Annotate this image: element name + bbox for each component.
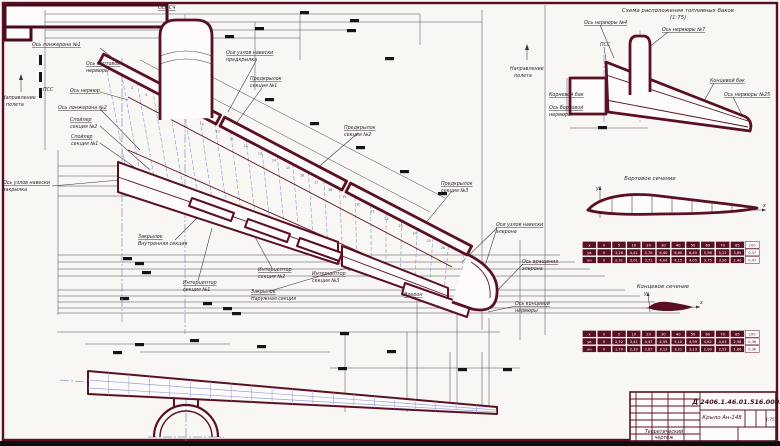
svg-text:10: 10	[632, 332, 637, 336]
slat3-label: Предкрылок	[441, 181, 473, 187]
svg-text:24: 24	[413, 232, 417, 236]
tip-tank-label: Концевой бак	[710, 78, 745, 84]
svg-text:секция №1: секция №1	[250, 83, 277, 89]
svg-text:1,86: 1,86	[733, 348, 742, 352]
slat2-label: Предкрылок	[344, 125, 376, 131]
svg-text:85: 85	[735, 243, 740, 247]
svg-text:4,15: 4,15	[674, 259, 682, 263]
svg-text:секция №2: секция №2	[70, 124, 97, 130]
svg-text:Наружная секция: Наружная секция	[251, 296, 296, 302]
x-axis-label: x	[699, 301, 703, 306]
slat-hinge-axis-label: Оси узлов навески	[226, 50, 273, 56]
flight-direction-label: Направление	[510, 66, 544, 72]
svg-text:5,78: 5,78	[645, 251, 654, 255]
svg-text:3,85: 3,85	[733, 251, 741, 255]
front-view	[88, 371, 497, 437]
svg-text:2,87: 2,87	[645, 348, 653, 352]
svg-text:6,45: 6,45	[689, 251, 697, 255]
wing-theoretical-drawing: 4567891011121314151617181920212223242526	[0, 0, 780, 446]
root-airfoil	[588, 195, 757, 215]
svg-text:60: 60	[706, 243, 711, 247]
up-arrow-icon	[525, 44, 529, 50]
wing-plan-view: 4567891011121314151617181920212223242526	[99, 20, 497, 317]
root-airfoil-table: x051020304050607085100yв03,264,415,786,4…	[582, 241, 759, 263]
svg-text:нервюры: нервюры	[549, 113, 572, 118]
svg-text:19: 19	[342, 195, 346, 199]
svg-text:30: 30	[661, 332, 666, 336]
part-name: Крыло Ан-148	[702, 415, 742, 421]
svg-text:3,26: 3,26	[719, 259, 728, 263]
aileron-rotation-axis-label: Ось вращения	[522, 259, 558, 265]
side-rib-axis-label: Ось бортовой	[549, 105, 583, 111]
fuel-scheme-title: Схема расположения топливных баков	[622, 8, 734, 14]
svg-text:yв: yв	[587, 251, 591, 255]
outer-flap-label: Закрылок	[251, 289, 276, 295]
spar2-axis-label: Ось лонжерона №2	[58, 105, 107, 111]
center-section-fairing	[160, 20, 212, 120]
pss-label: ПСС	[43, 87, 54, 93]
svg-text:70: 70	[720, 243, 725, 247]
wing-tip-outline	[452, 254, 497, 310]
tip-airfoil-table: x051020304050607085100yв02,523,414,474,9…	[582, 330, 759, 352]
svg-text:секция №2: секция №2	[258, 274, 285, 280]
svg-text:9: 9	[202, 122, 204, 126]
x-axis-label: x	[762, 204, 766, 209]
title-block: Д 2406.1.46.01.516.0002 Крыло Ан-148 1:7…	[630, 392, 780, 441]
svg-text:40: 40	[676, 332, 681, 336]
svg-text:3,26: 3,26	[615, 251, 624, 255]
rib4-axis-label: Ось нервюры №4	[584, 20, 627, 26]
fuel-fairing	[630, 36, 650, 95]
axis-cs-label: Ось СЧ	[158, 5, 176, 11]
side-rib-axis-label: Ось бортовой	[86, 61, 120, 67]
spoiler2-label: Спойлер	[70, 117, 92, 123]
spar1-axis-label: Ось лонжерона №1	[32, 42, 81, 48]
rib7-axis-label: Ось нервюры №7	[662, 27, 705, 33]
interceptor-panels	[189, 198, 342, 261]
svg-text:2,52: 2,52	[719, 348, 727, 352]
svg-text:0,47: 0,47	[748, 259, 756, 263]
svg-text:секция №1: секция №1	[183, 287, 210, 293]
flight-direction-left: Направление полета	[2, 74, 36, 108]
y-axis-label: y	[643, 292, 647, 297]
svg-text:4,95: 4,95	[659, 340, 667, 344]
root-tank-label: Корневой бак	[549, 92, 584, 98]
svg-text:yн: yн	[587, 259, 592, 263]
svg-text:Внутренняя секция: Внутренняя секция	[138, 241, 187, 247]
svg-text:2,33: 2,33	[630, 348, 638, 352]
up-arrow-icon	[19, 74, 23, 80]
svg-text:3,21: 3,21	[674, 348, 682, 352]
svg-text:12: 12	[244, 144, 248, 148]
slat1-label: Предкрылок	[250, 76, 282, 82]
svg-text:10: 10	[632, 243, 637, 247]
flight-direction-right: Направление полета	[510, 44, 544, 79]
drawing-sheet: 4567891011121314151617181920212223242526	[0, 0, 780, 446]
svg-text:20: 20	[356, 202, 360, 206]
svg-text:17: 17	[314, 181, 318, 185]
svg-text:2,98: 2,98	[733, 340, 742, 344]
svg-text:15: 15	[286, 166, 290, 170]
svg-text:4: 4	[131, 86, 133, 90]
svg-text:50: 50	[691, 332, 696, 336]
svg-text:3,01: 3,01	[630, 259, 638, 263]
svg-text:60: 60	[706, 332, 711, 336]
svg-text:2,31: 2,31	[615, 259, 623, 263]
svg-text:3,71: 3,71	[645, 259, 653, 263]
svg-text:100: 100	[749, 243, 757, 247]
ribs-axis-label: Ось нервюр	[70, 88, 100, 94]
svg-text:yн: yн	[587, 348, 592, 352]
tip-airfoil	[648, 302, 693, 311]
svg-text:70: 70	[720, 332, 725, 336]
svg-text:85: 85	[735, 332, 740, 336]
root-section-title: Бортовое сечение	[624, 176, 676, 182]
svg-text:50: 50	[691, 243, 696, 247]
y-axis-label: y	[595, 187, 599, 192]
fuel-scheme-scale: (1:75)	[670, 15, 686, 21]
flight-direction-label: Направление	[2, 95, 36, 101]
aileron-label: Элерон	[403, 292, 422, 298]
aileron-hinge-axis-label: Оси узлов навески	[496, 222, 543, 228]
svg-text:нервюры: нервюры	[515, 309, 538, 314]
tip-rib-axis-label: Ось концевой	[515, 301, 550, 307]
spoiler1-label: Спойлер	[71, 134, 93, 140]
doc-number: Д 2406.1.46.01.516.0002	[691, 398, 780, 406]
svg-text:0,47: 0,47	[748, 251, 756, 255]
svg-text:полета: полета	[6, 103, 24, 108]
svg-text:3,13: 3,13	[689, 348, 697, 352]
svg-text:3,12: 3,12	[659, 348, 667, 352]
doc-type-line1: Теоретический	[645, 429, 683, 435]
svg-text:18: 18	[328, 188, 332, 192]
interceptor3-label: Интерцептор	[312, 271, 346, 277]
svg-text:закрылка: закрылка	[3, 188, 27, 193]
svg-text:секция №2: секция №2	[344, 132, 371, 138]
svg-text:4,41: 4,41	[630, 251, 638, 255]
pss-label: ПСС	[600, 42, 611, 48]
svg-text:секция №3: секция №3	[312, 278, 339, 284]
scale-value: 1:75	[766, 417, 775, 422]
svg-text:13: 13	[258, 151, 262, 155]
interceptor2-label: Интерцептор	[258, 267, 292, 273]
rib25-axis-label: Ось нервюры №25	[724, 92, 770, 98]
svg-text:5: 5	[145, 93, 147, 97]
doc-type-line2: чертеж	[655, 436, 675, 441]
svg-text:5: 5	[618, 332, 620, 336]
svg-text:секция №1: секция №1	[71, 141, 98, 147]
svg-text:10: 10	[216, 130, 220, 134]
svg-text:26: 26	[441, 246, 445, 250]
svg-text:4,99: 4,99	[689, 340, 698, 344]
inner-flap-label: Закрылок	[138, 234, 163, 240]
svg-text:элерона: элерона	[496, 230, 517, 235]
svg-text:23: 23	[399, 224, 403, 228]
svg-text:22: 22	[385, 217, 389, 221]
svg-text:4,03: 4,03	[719, 340, 727, 344]
svg-text:5,10: 5,10	[674, 340, 683, 344]
svg-text:2,40: 2,40	[733, 259, 742, 263]
svg-text:4,04: 4,04	[659, 259, 668, 263]
svg-text:25: 25	[427, 239, 431, 243]
root-section-view: x051020304050607085100yв03,264,415,786,4…	[582, 186, 766, 263]
interceptor1-label: Интерцептор	[183, 280, 217, 286]
svg-text:5: 5	[618, 243, 620, 247]
svg-text:4,05: 4,05	[689, 259, 697, 263]
svg-text:4,62: 4,62	[704, 340, 712, 344]
svg-text:нервюры: нервюры	[86, 69, 109, 74]
svg-text:20: 20	[646, 243, 651, 247]
svg-text:1,79: 1,79	[615, 348, 624, 352]
svg-text:секция №3: секция №3	[441, 188, 468, 194]
svg-text:100: 100	[749, 332, 757, 336]
svg-text:0,36: 0,36	[748, 340, 757, 344]
svg-text:11: 11	[230, 137, 234, 141]
svg-text:21: 21	[370, 210, 374, 214]
svg-text:2,90: 2,90	[704, 348, 713, 352]
svg-text:4,47: 4,47	[645, 340, 653, 344]
svg-text:элерона: элерона	[522, 267, 543, 272]
tip-section-title: Концевое сечение	[637, 284, 690, 290]
svg-text:5,22: 5,22	[719, 251, 727, 255]
svg-text:3,75: 3,75	[704, 259, 712, 263]
tip-section-view: x051020304050607085100yв02,523,414,474,9…	[582, 292, 759, 352]
svg-text:6,60: 6,60	[674, 251, 683, 255]
svg-text:16: 16	[300, 173, 304, 177]
svg-text:предкрылка: предкрылка	[226, 58, 257, 63]
flap-hinge-axis-label: Ось узлов навески	[3, 180, 50, 186]
svg-text:0,36: 0,36	[748, 348, 757, 352]
svg-text:6,40: 6,40	[659, 251, 668, 255]
svg-text:30: 30	[661, 243, 666, 247]
svg-text:20: 20	[646, 332, 651, 336]
svg-text:2,52: 2,52	[615, 340, 623, 344]
svg-text:5,98: 5,98	[704, 251, 713, 255]
svg-text:40: 40	[676, 243, 681, 247]
svg-text:полета: полета	[514, 74, 532, 79]
svg-text:14: 14	[272, 159, 276, 163]
svg-text:3,41: 3,41	[630, 340, 638, 344]
svg-text:yв: yв	[587, 340, 591, 344]
